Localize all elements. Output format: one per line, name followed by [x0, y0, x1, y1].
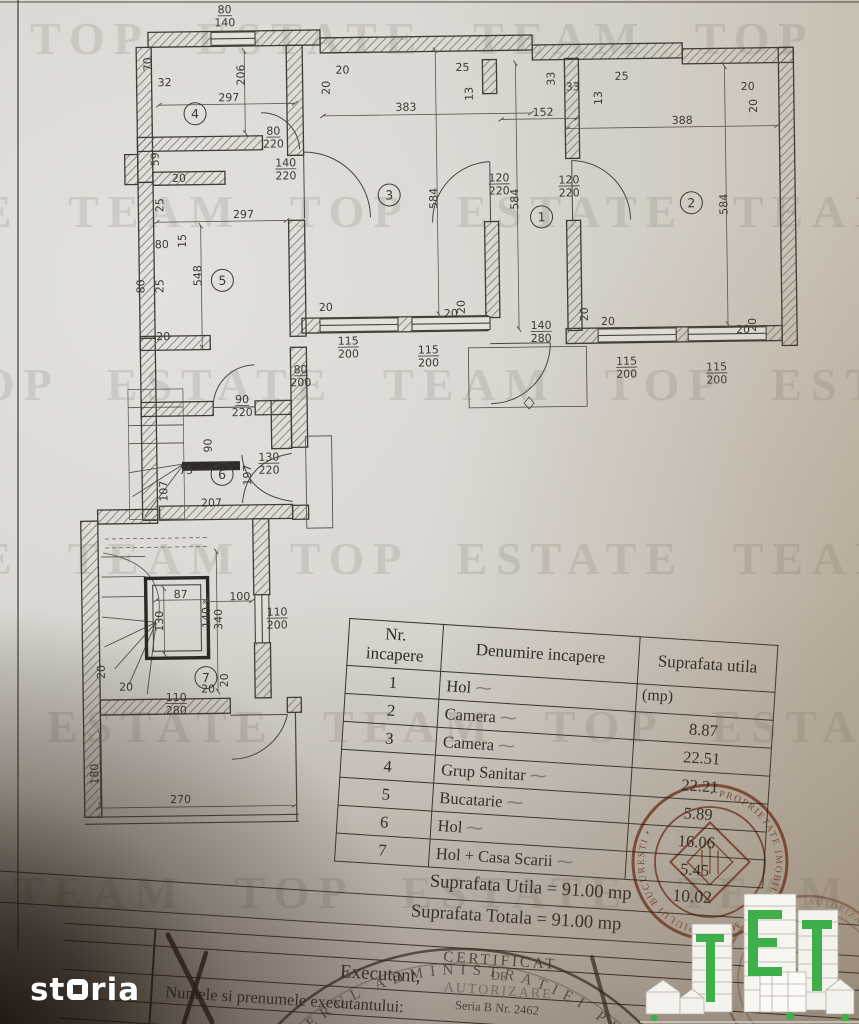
- dimension-label: 197: [241, 464, 254, 485]
- dimension-label: 33: [544, 72, 557, 86]
- dimension-label: 2: [687, 195, 695, 210]
- dimension-label: 90: [202, 438, 215, 452]
- dimension-label: 20: [747, 99, 760, 113]
- dimension-label: 140: [530, 319, 551, 332]
- total-utila-label: Suprafata Utila: [429, 872, 543, 899]
- dimension-label: 220: [232, 406, 253, 419]
- room-area-table: Nr. incapere Denumire incapere Suprafata…: [334, 618, 778, 889]
- top-estate-team-logo: [640, 876, 859, 1024]
- dimension-label: 152: [532, 106, 553, 119]
- dimension-label: 548: [191, 265, 204, 286]
- dimension-label: 80: [218, 3, 232, 16]
- dimension-label: 15: [176, 234, 189, 248]
- dimension-label: 90: [235, 393, 249, 406]
- executant-label: Executant,: [339, 961, 421, 988]
- scanned-floorplan-photo: TOP ESTATE TEAM TOP ESTATE TEAM TOP ESTA…: [0, 0, 859, 1024]
- dimension-label: 280: [531, 332, 552, 345]
- dimension-label: 25: [153, 198, 166, 212]
- dimension-label: 33: [566, 80, 580, 93]
- dimension-label: 388: [672, 114, 693, 127]
- dimension-label: 130: [258, 451, 279, 464]
- dimension-label: 100: [229, 590, 250, 603]
- dimension-label: 20: [601, 315, 615, 328]
- dimension-label: 383: [395, 101, 416, 114]
- dimension-label: 115: [418, 343, 439, 356]
- dimension-label: 220: [258, 464, 279, 477]
- dimension-label: 70: [141, 57, 154, 71]
- dimension-label: 584: [427, 188, 440, 209]
- dimension-label: 20: [320, 81, 333, 95]
- storia-logo-text: ria: [90, 972, 140, 1008]
- total-utila-value: = 91.00 mp: [546, 879, 632, 904]
- dimension-label: 32: [158, 76, 172, 89]
- dimension-label: 140: [275, 156, 296, 169]
- dimension-label: 200: [418, 356, 439, 369]
- storia-logo: stria: [30, 972, 140, 1008]
- dimension-label: 220: [489, 184, 510, 197]
- total-totala-value: = 91.00 mp: [536, 909, 622, 934]
- dimension-label: 107: [157, 481, 170, 502]
- dimension-label: 4: [191, 106, 199, 121]
- dimension-label: 584: [508, 189, 521, 210]
- dimension-label: 13: [463, 87, 476, 101]
- dimension-label: 20: [319, 301, 333, 314]
- dimension-label: 220: [559, 186, 580, 199]
- dimension-label: 20: [741, 80, 755, 93]
- dimension-label: 140: [214, 16, 235, 29]
- dimension-label: 220: [263, 137, 284, 150]
- dimension-label: 87: [174, 588, 188, 601]
- dimension-label: 20: [172, 172, 186, 185]
- dimension-label: 25: [614, 70, 628, 83]
- dimension-label: 200: [706, 373, 727, 386]
- dimension-label: 297: [233, 208, 254, 221]
- dimension-label: 200: [338, 347, 359, 360]
- col-header-area: Suprafata utila: [637, 637, 778, 693]
- dimension-label: 20: [578, 307, 591, 321]
- dimension-label: 584: [717, 194, 730, 215]
- dimension-label: 25: [153, 279, 166, 293]
- dimension-label: 1: [537, 209, 545, 224]
- storia-o-icon: [67, 979, 88, 1000]
- dimension-label: 25: [455, 61, 469, 74]
- dimension-label: 75: [179, 464, 193, 477]
- dimension-label: 115: [706, 360, 727, 373]
- dimension-label: 3: [385, 187, 393, 202]
- dimension-label: 20: [335, 64, 349, 77]
- dimension-label: 5: [218, 273, 226, 288]
- dimension-label: 200: [290, 376, 311, 389]
- dimension-label: 6: [218, 467, 226, 482]
- dimension-label: 80: [266, 125, 280, 138]
- dimension-label: 206: [234, 64, 247, 85]
- dimension-label: 207: [201, 496, 222, 509]
- dimension-label: 200: [616, 368, 637, 381]
- dimension-label: 297: [218, 91, 239, 104]
- dimension-label: 115: [616, 355, 637, 368]
- dimension-label: 59: [149, 152, 162, 166]
- dimension-label: 120: [558, 173, 579, 186]
- dimension-label: 20: [156, 330, 170, 343]
- dimension-label: 80: [155, 238, 169, 251]
- dimension-label: 13: [592, 91, 605, 105]
- dimension-label: 20: [455, 300, 468, 314]
- dimension-label: 20: [746, 318, 759, 332]
- dimension-label: 80: [294, 363, 308, 376]
- storia-logo-text: st: [30, 972, 65, 1008]
- dimension-label: 115: [338, 334, 359, 347]
- col-header-nr: Nr. incapere: [347, 619, 444, 672]
- dimension-label: 120: [488, 171, 509, 184]
- dimension-label: 220: [275, 169, 296, 182]
- total-totala-label: Suprafata Totala: [410, 901, 532, 929]
- area-unit: (mp): [641, 687, 673, 707]
- dimension-label: 80: [134, 279, 147, 293]
